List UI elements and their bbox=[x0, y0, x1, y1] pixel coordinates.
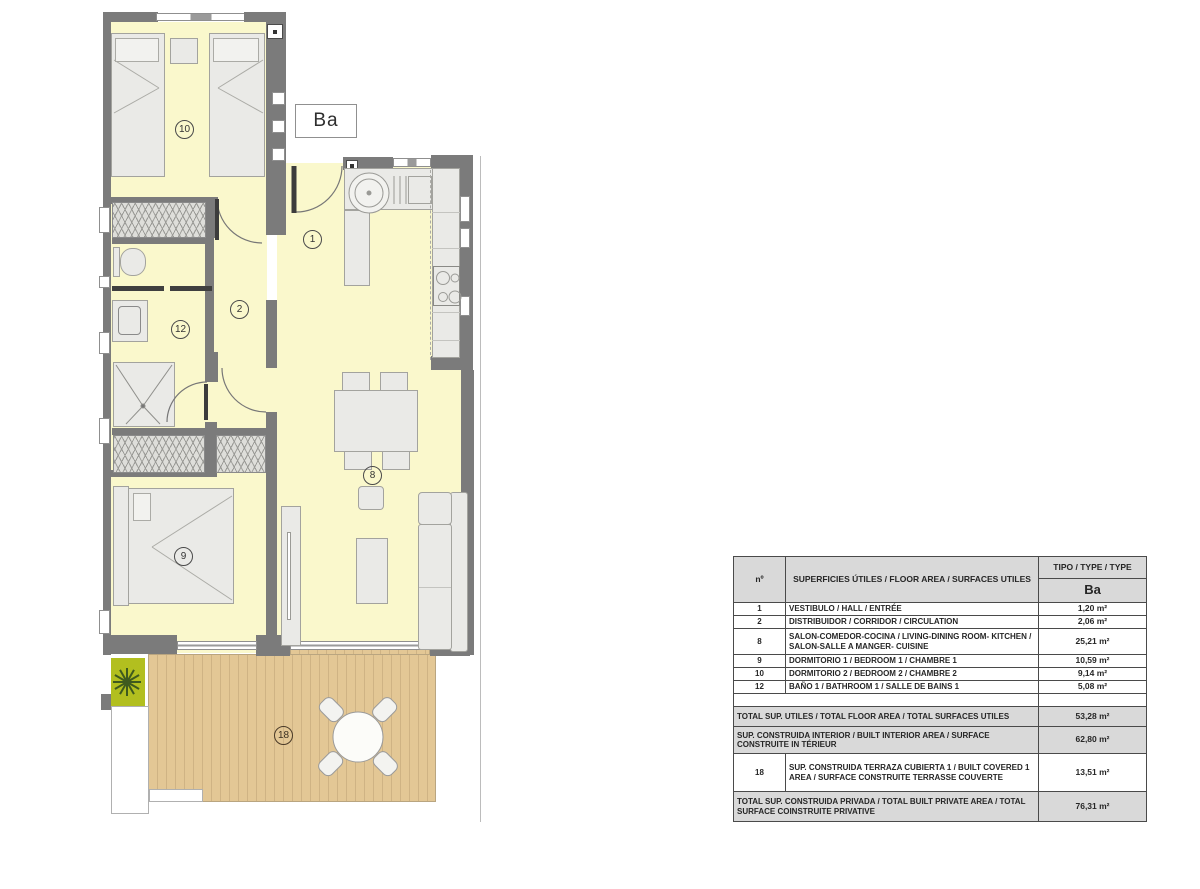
summary-row: SUP. CONSTRUIDA INTERIOR / BUILT INTERIO… bbox=[734, 727, 1147, 754]
window-shutter bbox=[99, 207, 110, 233]
window-shutter bbox=[99, 276, 110, 288]
row-no: 12 bbox=[734, 681, 786, 694]
summary-description: TOTAL SUP. UTILES / TOTAL FLOOR AREA / T… bbox=[734, 707, 1039, 727]
terrace-deck bbox=[148, 654, 436, 802]
wall-niche bbox=[272, 92, 285, 105]
row-no: 2 bbox=[734, 616, 786, 629]
row-no: 18 bbox=[734, 754, 786, 792]
room-number: 8 bbox=[370, 470, 376, 481]
pillow bbox=[133, 493, 151, 521]
room-label-hall: 1 bbox=[303, 230, 322, 249]
spacer-cell bbox=[734, 694, 1039, 707]
row-description: VESTIBULO / HALL / ENTRÉE bbox=[786, 603, 1039, 616]
wall bbox=[103, 12, 158, 22]
area-table: nº SUPERFICIES ÚTILES / FLOOR AREA / SUR… bbox=[733, 556, 1147, 822]
room-number: 9 bbox=[181, 551, 187, 562]
dining-chair bbox=[382, 450, 410, 470]
room-number: 10 bbox=[179, 124, 190, 135]
cooktop bbox=[433, 266, 460, 306]
wall bbox=[266, 192, 286, 235]
summary-value: 13,51 m² bbox=[1039, 754, 1147, 792]
summary-description: SUP. CONSTRUIDA TERRAZA CUBIERTA 1 / BUI… bbox=[786, 754, 1039, 792]
row-description: DORMITORIO 1 / BEDROOM 1 / CHAMBRE 1 bbox=[786, 655, 1039, 668]
kitchen-basin bbox=[408, 176, 432, 204]
wardrobe bbox=[113, 435, 205, 473]
wall-niche bbox=[272, 148, 285, 161]
wardrobe bbox=[216, 435, 266, 473]
electrical-fixture bbox=[267, 24, 283, 39]
sliding-door bbox=[177, 641, 257, 650]
wall bbox=[205, 352, 218, 382]
room-label-terrace: 18 bbox=[274, 726, 293, 745]
wall-niche bbox=[460, 296, 470, 316]
wall bbox=[112, 238, 206, 244]
spacer-cell bbox=[1039, 694, 1147, 707]
pillow bbox=[213, 38, 259, 62]
dining-chair bbox=[380, 372, 408, 392]
type-value-cell: Ba bbox=[1039, 579, 1147, 603]
sofa-back bbox=[450, 492, 468, 652]
wall bbox=[266, 300, 277, 368]
dining-chair bbox=[342, 372, 370, 392]
room-label-living: 8 bbox=[363, 466, 382, 485]
row-value: 10,59 m² bbox=[1039, 655, 1147, 668]
sofa-seam bbox=[419, 587, 451, 588]
window bbox=[156, 13, 246, 21]
window-shutter bbox=[99, 418, 110, 444]
nightstand bbox=[170, 38, 198, 64]
wall bbox=[459, 165, 473, 358]
wall bbox=[216, 428, 266, 435]
room-number: 1 bbox=[310, 234, 316, 245]
wall bbox=[101, 694, 111, 710]
spacer-row bbox=[734, 694, 1147, 707]
coffee-table bbox=[356, 538, 388, 604]
row-no: 9 bbox=[734, 655, 786, 668]
wall bbox=[205, 238, 214, 356]
towel-rail bbox=[112, 286, 164, 291]
wall bbox=[266, 412, 277, 645]
counter-seam bbox=[432, 212, 460, 213]
row-no: 10 bbox=[734, 668, 786, 681]
sofa-cushion bbox=[418, 492, 452, 525]
table-row: 8 SALON-COMEDOR-COCINA / LIVING-DINING R… bbox=[734, 629, 1147, 655]
row-value: 9,14 m² bbox=[1039, 668, 1147, 681]
summary-value: 62,80 m² bbox=[1039, 727, 1147, 754]
wall bbox=[112, 428, 206, 435]
table-row: 12 BAÑO 1 / BATHROOM 1 / SALLE DE BAINS … bbox=[734, 681, 1147, 694]
wall bbox=[111, 635, 177, 654]
table-row: 1 VESTIBULO / HALL / ENTRÉE 1,20 m² bbox=[734, 603, 1147, 616]
column-header-type: TIPO / TYPE / TYPE bbox=[1039, 557, 1147, 579]
row-description: SALON-COMEDOR-COCINA / LIVING-DINING ROO… bbox=[786, 629, 1039, 655]
summary-value: 53,28 m² bbox=[1039, 707, 1147, 727]
wall-niche bbox=[460, 196, 470, 222]
row-description: BAÑO 1 / BATHROOM 1 / SALLE DE BAINS 1 bbox=[786, 681, 1039, 694]
counter-seam bbox=[432, 248, 460, 249]
sliding-door bbox=[290, 641, 430, 650]
wall bbox=[205, 197, 218, 238]
counter-seam bbox=[432, 312, 460, 313]
pillow bbox=[115, 38, 159, 62]
kitchen-counter bbox=[432, 168, 460, 358]
column-header-no: nº bbox=[734, 557, 786, 603]
row-description: DISTRIBUIDOR / CORRIDOR / CIRCULATION bbox=[786, 616, 1039, 629]
counter-seam bbox=[432, 340, 460, 341]
column-header-description: SUPERFICIES ÚTILES / FLOOR AREA / SURFAC… bbox=[786, 557, 1039, 603]
toilet-tank bbox=[113, 247, 120, 277]
towel-rail bbox=[170, 286, 212, 291]
room-label-bedroom-2: 10 bbox=[175, 120, 194, 139]
row-no: 8 bbox=[734, 629, 786, 655]
summary-value: 76,31 m² bbox=[1039, 792, 1147, 822]
wall-niche bbox=[460, 228, 470, 248]
row-no: 1 bbox=[734, 603, 786, 616]
overhead-cabinet-line bbox=[430, 170, 431, 360]
wall-niche bbox=[272, 120, 285, 133]
room-label-corridor: 2 bbox=[230, 300, 249, 319]
headboard bbox=[113, 486, 129, 606]
row-value: 2,06 m² bbox=[1039, 616, 1147, 629]
unit-type-label: Ba bbox=[295, 104, 357, 138]
wall bbox=[431, 356, 473, 370]
toilet bbox=[120, 248, 146, 276]
summary-row: TOTAL SUP. UTILES / TOTAL FLOOR AREA / T… bbox=[734, 707, 1147, 727]
room-number: 12 bbox=[175, 324, 186, 335]
room-label-bathroom: 12 bbox=[171, 320, 190, 339]
window bbox=[393, 158, 431, 167]
terrace-side-strip bbox=[111, 706, 149, 814]
summary-description: SUP. CONSTRUIDA INTERIOR / BUILT INTERIO… bbox=[734, 727, 1039, 754]
terrace-notch bbox=[149, 789, 203, 802]
tv bbox=[287, 532, 291, 620]
kitchen-peninsula bbox=[344, 210, 370, 286]
side-table bbox=[358, 486, 384, 510]
row-description: DORMITORIO 2 / BEDROOM 2 / CHAMBRE 2 bbox=[786, 668, 1039, 681]
row-value: 25,21 m² bbox=[1039, 629, 1147, 655]
summary-description: TOTAL SUP. CONSTRUIDA PRIVADA / TOTAL BU… bbox=[734, 792, 1039, 822]
wardrobe bbox=[112, 202, 206, 238]
room-label-bedroom-1: 9 bbox=[174, 547, 193, 566]
table-row: 9 DORMITORIO 1 / BEDROOM 1 / CHAMBRE 1 1… bbox=[734, 655, 1147, 668]
summary-row: 18 SUP. CONSTRUIDA TERRAZA CUBIERTA 1 / … bbox=[734, 754, 1147, 792]
dining-table bbox=[334, 390, 418, 452]
sink-basin bbox=[118, 306, 141, 335]
boundary-line bbox=[480, 156, 481, 822]
row-value: 1,20 m² bbox=[1039, 603, 1147, 616]
room-number: 18 bbox=[278, 730, 289, 741]
table-row: 2 DISTRIBUIDOR / CORRIDOR / CIRCULATION … bbox=[734, 616, 1147, 629]
tv-unit bbox=[281, 506, 301, 646]
window-shutter bbox=[99, 332, 110, 354]
summary-row: TOTAL SUP. CONSTRUIDA PRIVADA / TOTAL BU… bbox=[734, 792, 1147, 822]
row-value: 5,08 m² bbox=[1039, 681, 1147, 694]
room-number: 2 bbox=[237, 304, 243, 315]
planter-box bbox=[111, 658, 145, 706]
shower-tray bbox=[113, 362, 175, 427]
window-shutter bbox=[99, 610, 110, 634]
table-row: 10 DORMITORIO 2 / BEDROOM 2 / CHAMBRE 2 … bbox=[734, 668, 1147, 681]
